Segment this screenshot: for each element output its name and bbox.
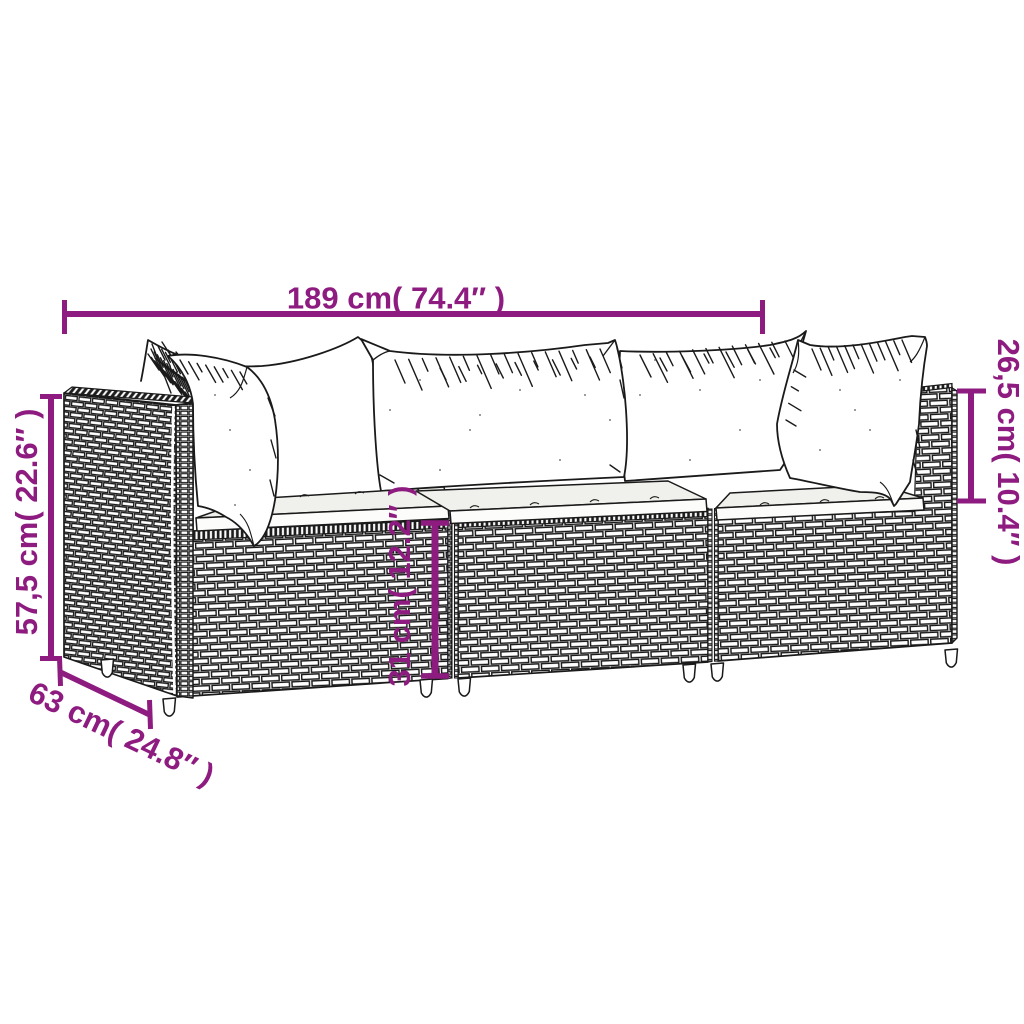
svg-text:26,5 cm( 10.4″ ): 26,5 cm( 10.4″ ) <box>991 339 1024 566</box>
svg-text:189 cm( 74.4″ ): 189 cm( 74.4″ ) <box>287 281 505 316</box>
svg-text:57,5 cm( 22.6″ ): 57,5 cm( 22.6″ ) <box>9 409 44 636</box>
svg-text:31 cm( 12.2″ ): 31 cm( 12.2″ ) <box>382 486 417 687</box>
